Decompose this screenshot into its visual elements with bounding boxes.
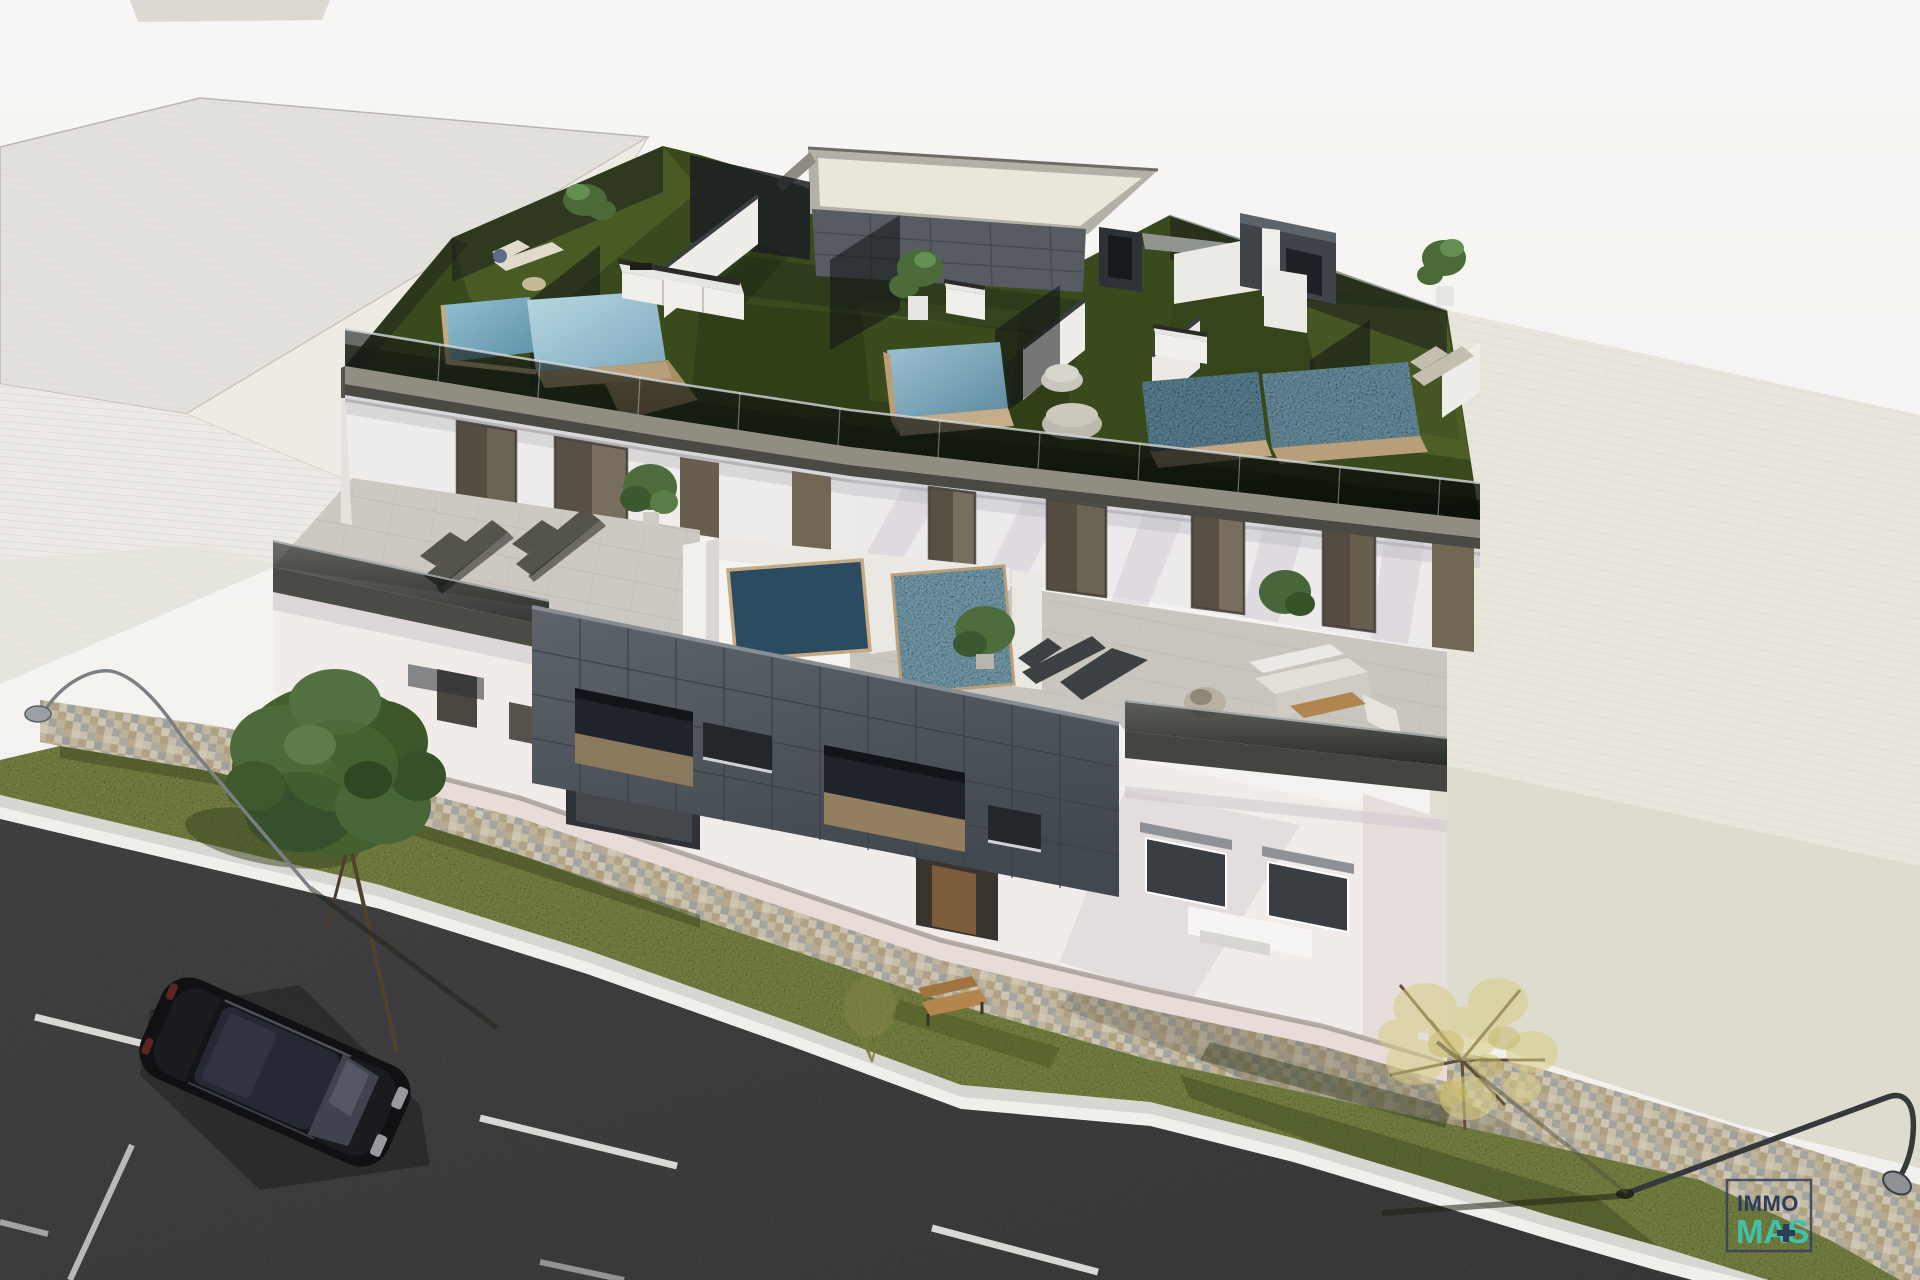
svg-text:MAS: MAS (1736, 1213, 1809, 1250)
